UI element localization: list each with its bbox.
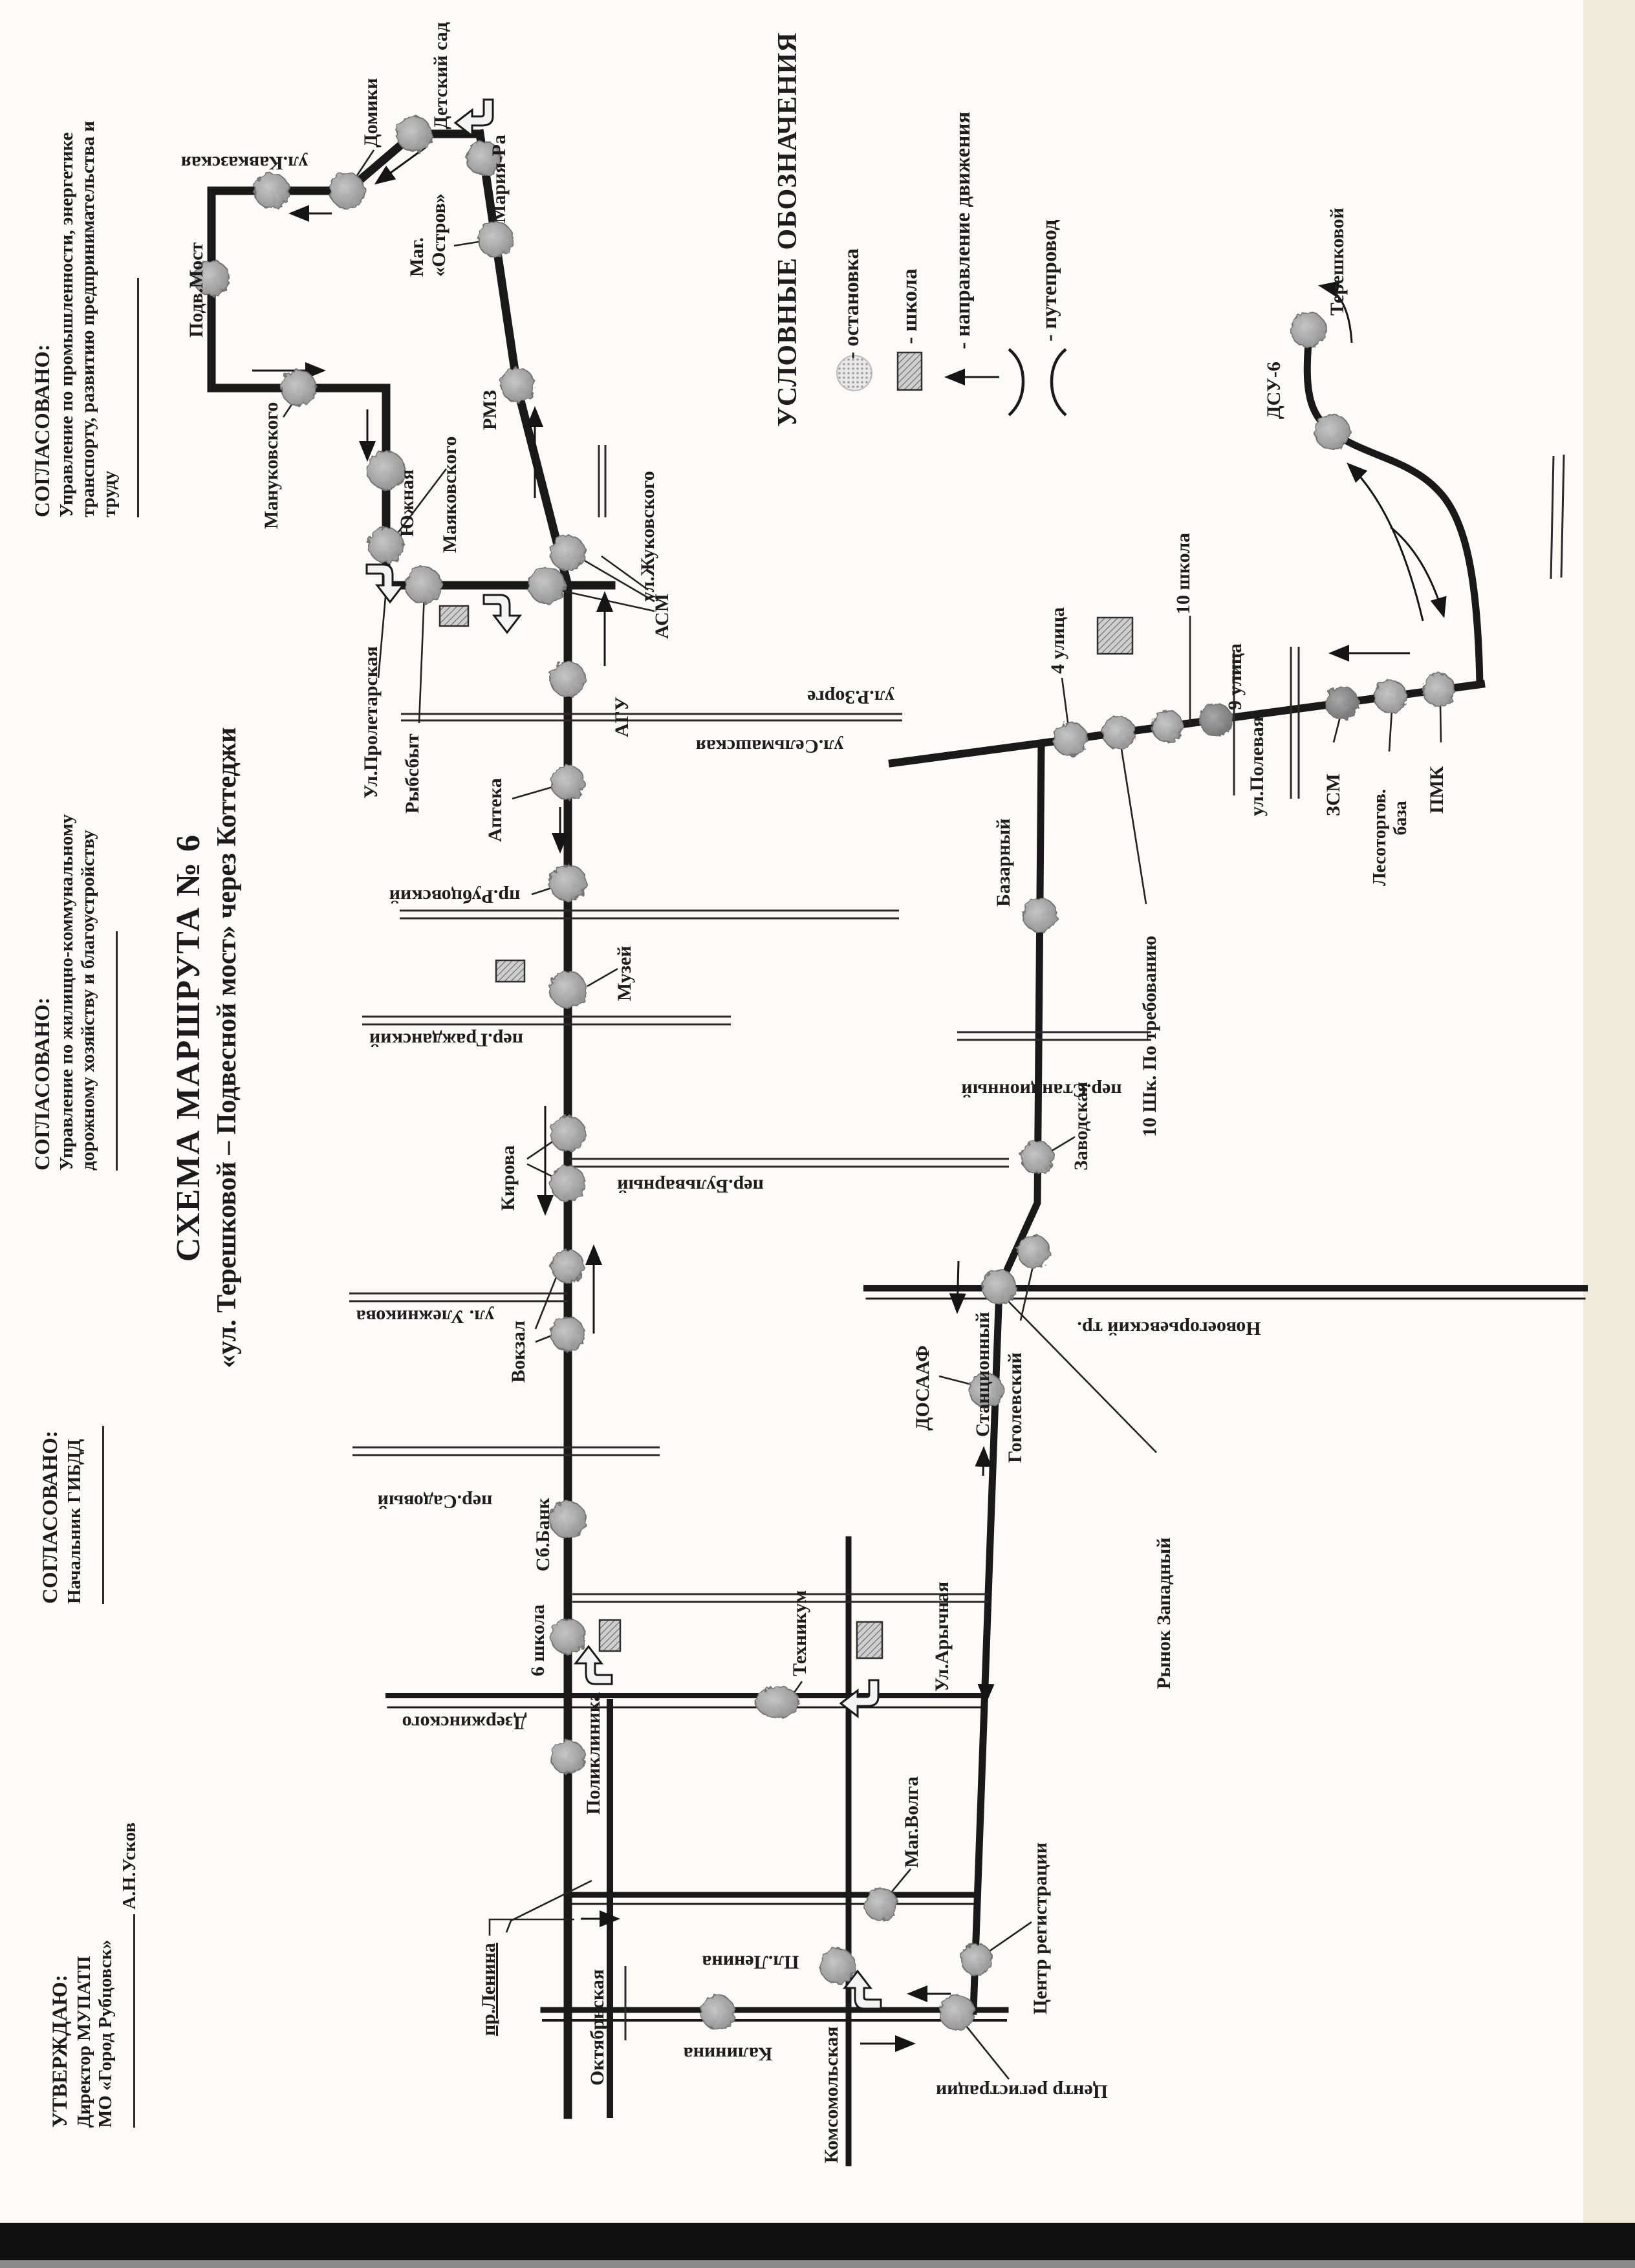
- school-rect-tehnikum: [857, 1622, 882, 1658]
- street-zhukovskogo-mark: [599, 445, 605, 517]
- approval-block-3: СОГЛАСОВАНО: Начальник ГИБДД: [39, 1416, 109, 1604]
- label-rubcovskiy: пр.Рубцовский: [377, 886, 532, 907]
- scan-edge: [1583, 0, 1635, 2268]
- route-map-drawing: [0, 0, 1635, 2268]
- label-tereshkovoy: Терешковой: [1327, 202, 1348, 316]
- label-proletarskaya: Ул.Пролетарская: [361, 643, 382, 799]
- stop-bazarnyy: [1023, 898, 1057, 932]
- label-domiki: Домики: [361, 67, 382, 147]
- approval-title: СОГЛАСОВАНО:: [31, 100, 55, 517]
- label-dosaaf: ДОСААФ: [913, 1334, 933, 1431]
- label-poliklinika: Поликлиника: [583, 1705, 604, 1815]
- school-rects: [440, 352, 1132, 1658]
- label-arychnaya: Ул.Арычная: [932, 1572, 953, 1692]
- signature-line: [116, 1914, 135, 2128]
- approval-title: УТВЕРЖДАЮ:: [49, 1688, 72, 2128]
- approval-signer: А.Н.Усков: [119, 1822, 140, 1910]
- label-bulvarnyy: пер.Бульварный: [608, 1176, 773, 1196]
- street-grazhdanskiy: [362, 1017, 731, 1024]
- legend-school-label: - школа: [899, 241, 922, 344]
- street-selmashskaya: [401, 714, 902, 720]
- stop-rybsbyt: [406, 567, 442, 603]
- street-ulezhnikova: [349, 1293, 568, 1301]
- scan-bottom-band: [0, 2223, 1635, 2260]
- label-lesotorg: Лесоторгов. база: [1370, 750, 1411, 886]
- stop-shkola6: [550, 1619, 585, 1654]
- stop-rmz: [501, 368, 534, 402]
- stop-dsu6: [1315, 415, 1350, 449]
- stop-lesotorg: [1374, 680, 1407, 713]
- street-sadovyy: [352, 1447, 660, 1455]
- approval-line: дорожному хозяйству и благоустройству: [78, 750, 99, 1171]
- stop-domiki: [330, 173, 365, 208]
- stop-asm-2: [528, 567, 565, 603]
- stop-vokzal-2: [551, 1317, 585, 1351]
- label-oktyabrskaya: Октябрьская: [587, 1966, 608, 2086]
- route-roads: [211, 134, 1585, 2163]
- approval-block-2: СОГЛАСОВАНО: Управление по жилищно-комму…: [31, 750, 123, 1171]
- label-grazhdanskiy: пер.Гражданский: [362, 1030, 530, 1050]
- label-agu: АГУ: [612, 679, 633, 737]
- stop-pllenina: [820, 1949, 855, 1983]
- stop-detsad: [396, 116, 431, 151]
- label-pllenina: Пл.Ленина: [697, 1952, 804, 1972]
- stop-manukovskogo: [281, 371, 316, 405]
- school-rect-muzey: [496, 960, 525, 982]
- scanned-route-scheme: СОГЛАСОВАНО: Управление по промышленност…: [0, 0, 1635, 2268]
- label-kirova: Кирова: [498, 1139, 519, 1211]
- label-ulezhnikova: ул. Улежникова: [349, 1306, 501, 1327]
- label-centrreg-right: Центр регистрации: [1030, 1840, 1051, 2014]
- label-sbbank: Сб.Банк: [533, 1491, 554, 1571]
- stop-10shkola: [1152, 711, 1183, 742]
- stop-vokzal-1: [552, 1250, 584, 1282]
- street-polevaya: [1291, 647, 1299, 799]
- label-centrreg-bottom: Центр регистрации: [931, 2081, 1112, 2102]
- label-zorge: ул.Р.Зорге: [794, 687, 907, 707]
- stop-centrreg-b: [940, 1995, 975, 2030]
- stop-tereshkovoy: [1291, 312, 1326, 347]
- label-novoegorievskiy: Новоегорьевский тр.: [1048, 1318, 1290, 1339]
- label-10shk-potreb: 10 Шк. По требованию: [1140, 904, 1160, 1137]
- legend-stop-label: - остановка: [841, 223, 863, 359]
- label-detsad: Детский сад: [431, 13, 451, 129]
- label-pmk: ПМК: [1427, 749, 1447, 814]
- stop-magostrov: [478, 222, 513, 257]
- label-9ulica: 9 улица: [1225, 620, 1246, 710]
- label-zavodskaya: Заводская: [1071, 1064, 1092, 1171]
- label-shkola6: 6 школа: [528, 1599, 548, 1676]
- stop-muzey: [550, 971, 586, 1008]
- school-rect-asm: [440, 606, 468, 626]
- stop-rubcovskiy: [550, 865, 586, 901]
- approval-line: Начальник ГИБДД: [64, 1416, 85, 1604]
- stop-kirova-2: [550, 1166, 585, 1201]
- scheme-title: СХЕМА МАРШРУТА № 6 «ул. Терешковой – Под…: [169, 698, 243, 1397]
- stop-tehnikum: [756, 1687, 799, 1718]
- label-magostrov-1: Маг.: [406, 212, 428, 277]
- label-yuzhnaya: Южная: [397, 469, 418, 537]
- stop-gogolevskiy: [1017, 1235, 1050, 1268]
- street-bulvarnyy: [569, 1159, 1009, 1167]
- label-kalinina: Калинина: [678, 2044, 778, 2064]
- stop-sbbank: [550, 1502, 586, 1538]
- road-dsu-curve: [1307, 343, 1480, 684]
- stop-centrreg-a: [961, 1944, 992, 1975]
- legend-overpass-label: - путепровод: [1039, 193, 1061, 341]
- approval-line: Директор МУПАТП: [74, 1688, 95, 2128]
- label-magvolga: Маг.Волга: [902, 1771, 922, 1868]
- label-polevaya: ул.Полевая: [1247, 690, 1268, 816]
- label-mayakovskogo: Маяковского: [440, 427, 460, 553]
- school-rect-4ul: [1098, 618, 1132, 654]
- legend-direction-label: - направление движения: [952, 103, 975, 349]
- label-rybsbyt: Рыбсбыт: [402, 726, 423, 814]
- stop-zavodskaya: [1021, 1141, 1054, 1174]
- stop-agu: [550, 662, 585, 697]
- stop-pmk: [1423, 674, 1455, 706]
- approval-block-1: СОГЛАСОВАНО: Управление по промышленност…: [31, 100, 144, 517]
- label-muzey: Музей: [614, 940, 635, 1001]
- signature-line: [85, 1426, 104, 1604]
- stop-magvolga: [865, 1888, 897, 1921]
- label-sadovyy: пер.Садовый: [369, 1491, 501, 1512]
- approval-title: СОГЛАСОВАНО:: [39, 1416, 63, 1604]
- label-vokzal: Вокзал: [508, 1312, 529, 1383]
- label-prlenina: пр.Ленина: [479, 1932, 499, 2036]
- overpass-marks: [1551, 455, 1564, 579]
- label-bazarnyy: Базарный: [993, 806, 1014, 907]
- legend-title: УСЛОВНЫЕ ОБОЗНАЧЕНИЯ: [774, 103, 802, 427]
- stop-zsm: [1326, 687, 1358, 719]
- stop-poliklinika: [551, 1740, 585, 1774]
- label-asm: АСМ: [652, 584, 673, 639]
- signature-line: [99, 931, 118, 1171]
- label-stancionnyy: Станционный: [973, 1256, 993, 1437]
- label-magostrov-2: «Остров»: [428, 212, 450, 277]
- label-rynok: Рынок Западный: [1154, 1450, 1175, 1689]
- approval-line: транспорту, развитию предпринимательства…: [78, 100, 120, 517]
- label-zsm: ЗСМ: [1323, 751, 1344, 816]
- approval-line: Управление по промышленности, энергетике: [56, 100, 78, 517]
- school-rect-6: [600, 1620, 620, 1651]
- approval-line: МО «Город Рубцовск»: [95, 1688, 116, 2128]
- approval-line: Управление по жилищно-коммунальному: [56, 750, 78, 1171]
- label-komsomolskaya: Комсомольская: [821, 2018, 842, 2163]
- label-lesotorg-1: Лесоторгов.: [1370, 750, 1391, 886]
- stop-asm-1: [550, 535, 585, 570]
- approval-block-4: УТВЕРЖДАЮ: Директор МУПАТП МО «Город Руб…: [49, 1688, 140, 2128]
- label-rmz: РМЗ: [480, 378, 501, 430]
- label-magostrov: Маг. «Остров»: [406, 212, 450, 277]
- label-dzerzhinskogo: Дзержинского: [393, 1712, 536, 1733]
- stop-10shk-potreb: [1103, 717, 1135, 749]
- approval-title: СОГЛАСОВАНО:: [31, 750, 55, 1171]
- label-apteka: Аптека: [485, 768, 506, 842]
- label-manukovskogo: Мануковского: [261, 400, 282, 529]
- street-unnamed: [572, 1594, 988, 1602]
- label-per-stancionnyy: пер.Станционный: [956, 1080, 1127, 1101]
- label-podvmost: Подв.Мост: [186, 237, 207, 338]
- street-per-stancionnyy: [957, 1032, 1151, 1040]
- label-dsu6: ДСУ-6: [1264, 348, 1284, 419]
- label-kavkazskaya: ул.Кавказская: [180, 153, 309, 173]
- label-10shkola: 10 школа: [1173, 521, 1194, 614]
- stop-4ulica: [1054, 722, 1087, 756]
- label-selmashskaya: ул.Сельмашская: [673, 736, 867, 757]
- scan-bottom-shadow: [0, 2260, 1635, 2268]
- stop-kirova-1: [550, 1116, 585, 1151]
- label-zhukovskogo: ул.Жуковского: [638, 443, 658, 601]
- stop-kavkazskaya: [254, 173, 289, 208]
- label-gogolevskiy: Гоголевский: [1005, 1314, 1026, 1463]
- label-mariara: Мария-Ра: [489, 139, 510, 223]
- street-rubcovskiy: [400, 911, 899, 918]
- scheme-title-line1: СХЕМА МАРШРУТА № 6: [169, 698, 208, 1397]
- label-4ulica: 4 улица: [1048, 561, 1068, 674]
- signature-line: [120, 278, 139, 517]
- stop-kalinina: [701, 1996, 735, 2029]
- stop-apteka: [551, 766, 585, 799]
- scheme-title-line2: «ул. Терешковой – Подвесной мост» через …: [211, 698, 243, 1397]
- label-tehnikum: Техникум: [790, 1586, 810, 1676]
- legend-overpass-symbol: [1009, 349, 1066, 415]
- label-lesotorg-2: база: [1391, 750, 1411, 886]
- legend-stop-symbol: [837, 356, 872, 391]
- legend-school-symbol: [898, 352, 922, 390]
